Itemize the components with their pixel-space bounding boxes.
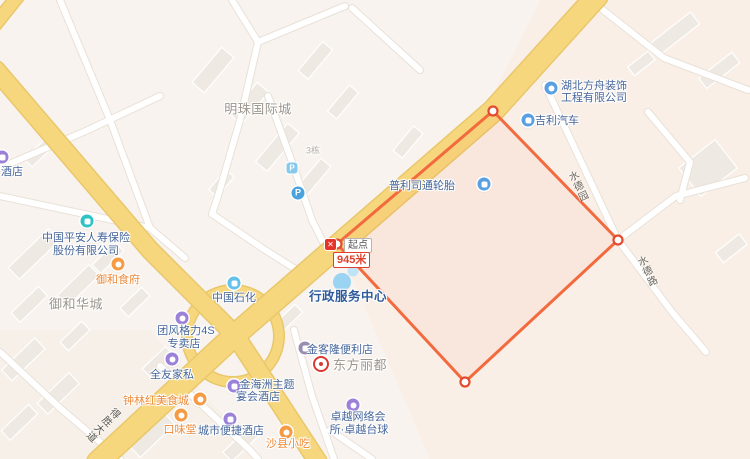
poi-label-jinhaizhou-2[interactable]: 宴会酒店 xyxy=(236,388,280,404)
poi-label-jili[interactable]: 吉利汽车 xyxy=(535,112,579,128)
poi-label-yuheshifu[interactable]: 御和食府 xyxy=(96,271,140,287)
measure-close-button[interactable]: ✕ xyxy=(325,239,336,250)
vertex-marker[interactable] xyxy=(489,107,498,116)
parking-icon[interactable]: P xyxy=(292,187,305,200)
landmark-target-icon[interactable] xyxy=(313,356,329,372)
car-service-icon[interactable] xyxy=(478,178,491,191)
map-canvas[interactable]: P P 中国平安人寿保险 股份有限公司 御和食府 酒店 御和华城 明珠国际城 3… xyxy=(0,0,750,459)
car-dealer-icon[interactable] xyxy=(522,114,535,127)
poi-label-chengshi[interactable]: 城市便捷酒店 xyxy=(198,422,264,438)
poi-label-pingan-2[interactable]: 股份有限公司 xyxy=(53,242,119,258)
food-icon[interactable] xyxy=(175,409,188,422)
poi-label-zhuoyue-2[interactable]: 所·卓越台球 xyxy=(330,421,389,437)
poi-label-xingzheng[interactable]: 行政服务中心 xyxy=(309,286,387,305)
insurance-icon[interactable] xyxy=(81,215,94,228)
area-label-yuhehuacheng: 御和华城 xyxy=(49,294,103,313)
poi-label-shihua[interactable]: 中国石化 xyxy=(212,289,256,305)
poi-label-fangzhou-2[interactable]: 工程有限公司 xyxy=(561,89,627,105)
company-icon[interactable] xyxy=(545,82,558,95)
food-icon[interactable] xyxy=(194,393,207,406)
poi-label-pulisitong[interactable]: 普利司通轮胎 xyxy=(389,177,455,193)
area-label-mingzhu: 明珠国际城 xyxy=(224,99,292,118)
poi-label-geli-2[interactable]: 专卖店 xyxy=(168,335,201,351)
poi-label-hotel-edge[interactable]: 酒店 xyxy=(1,163,23,179)
restaurant-icon[interactable] xyxy=(112,258,125,271)
furniture-store-icon[interactable] xyxy=(166,353,179,366)
poi-label-kouweitang[interactable]: 口味堂 xyxy=(164,421,197,437)
poi-label-shaxian[interactable]: 沙县小吃 xyxy=(266,435,310,451)
vertex-marker[interactable] xyxy=(614,236,623,245)
parking-icon[interactable]: P xyxy=(287,163,298,174)
poi-label-zhonglinhong[interactable]: 钟林红美食城 xyxy=(123,392,189,408)
building-number-label: 3栋 xyxy=(306,144,320,157)
poi-label-quanyou[interactable]: 全友家私 xyxy=(150,366,194,382)
measure-distance-label: 945米 xyxy=(333,252,370,268)
measure-start-label: 起点 xyxy=(344,238,372,253)
area-label-dongfanglidu: 东方丽都 xyxy=(333,355,387,374)
fuel-station-icon[interactable] xyxy=(228,277,241,290)
vertex-marker[interactable] xyxy=(461,378,470,387)
